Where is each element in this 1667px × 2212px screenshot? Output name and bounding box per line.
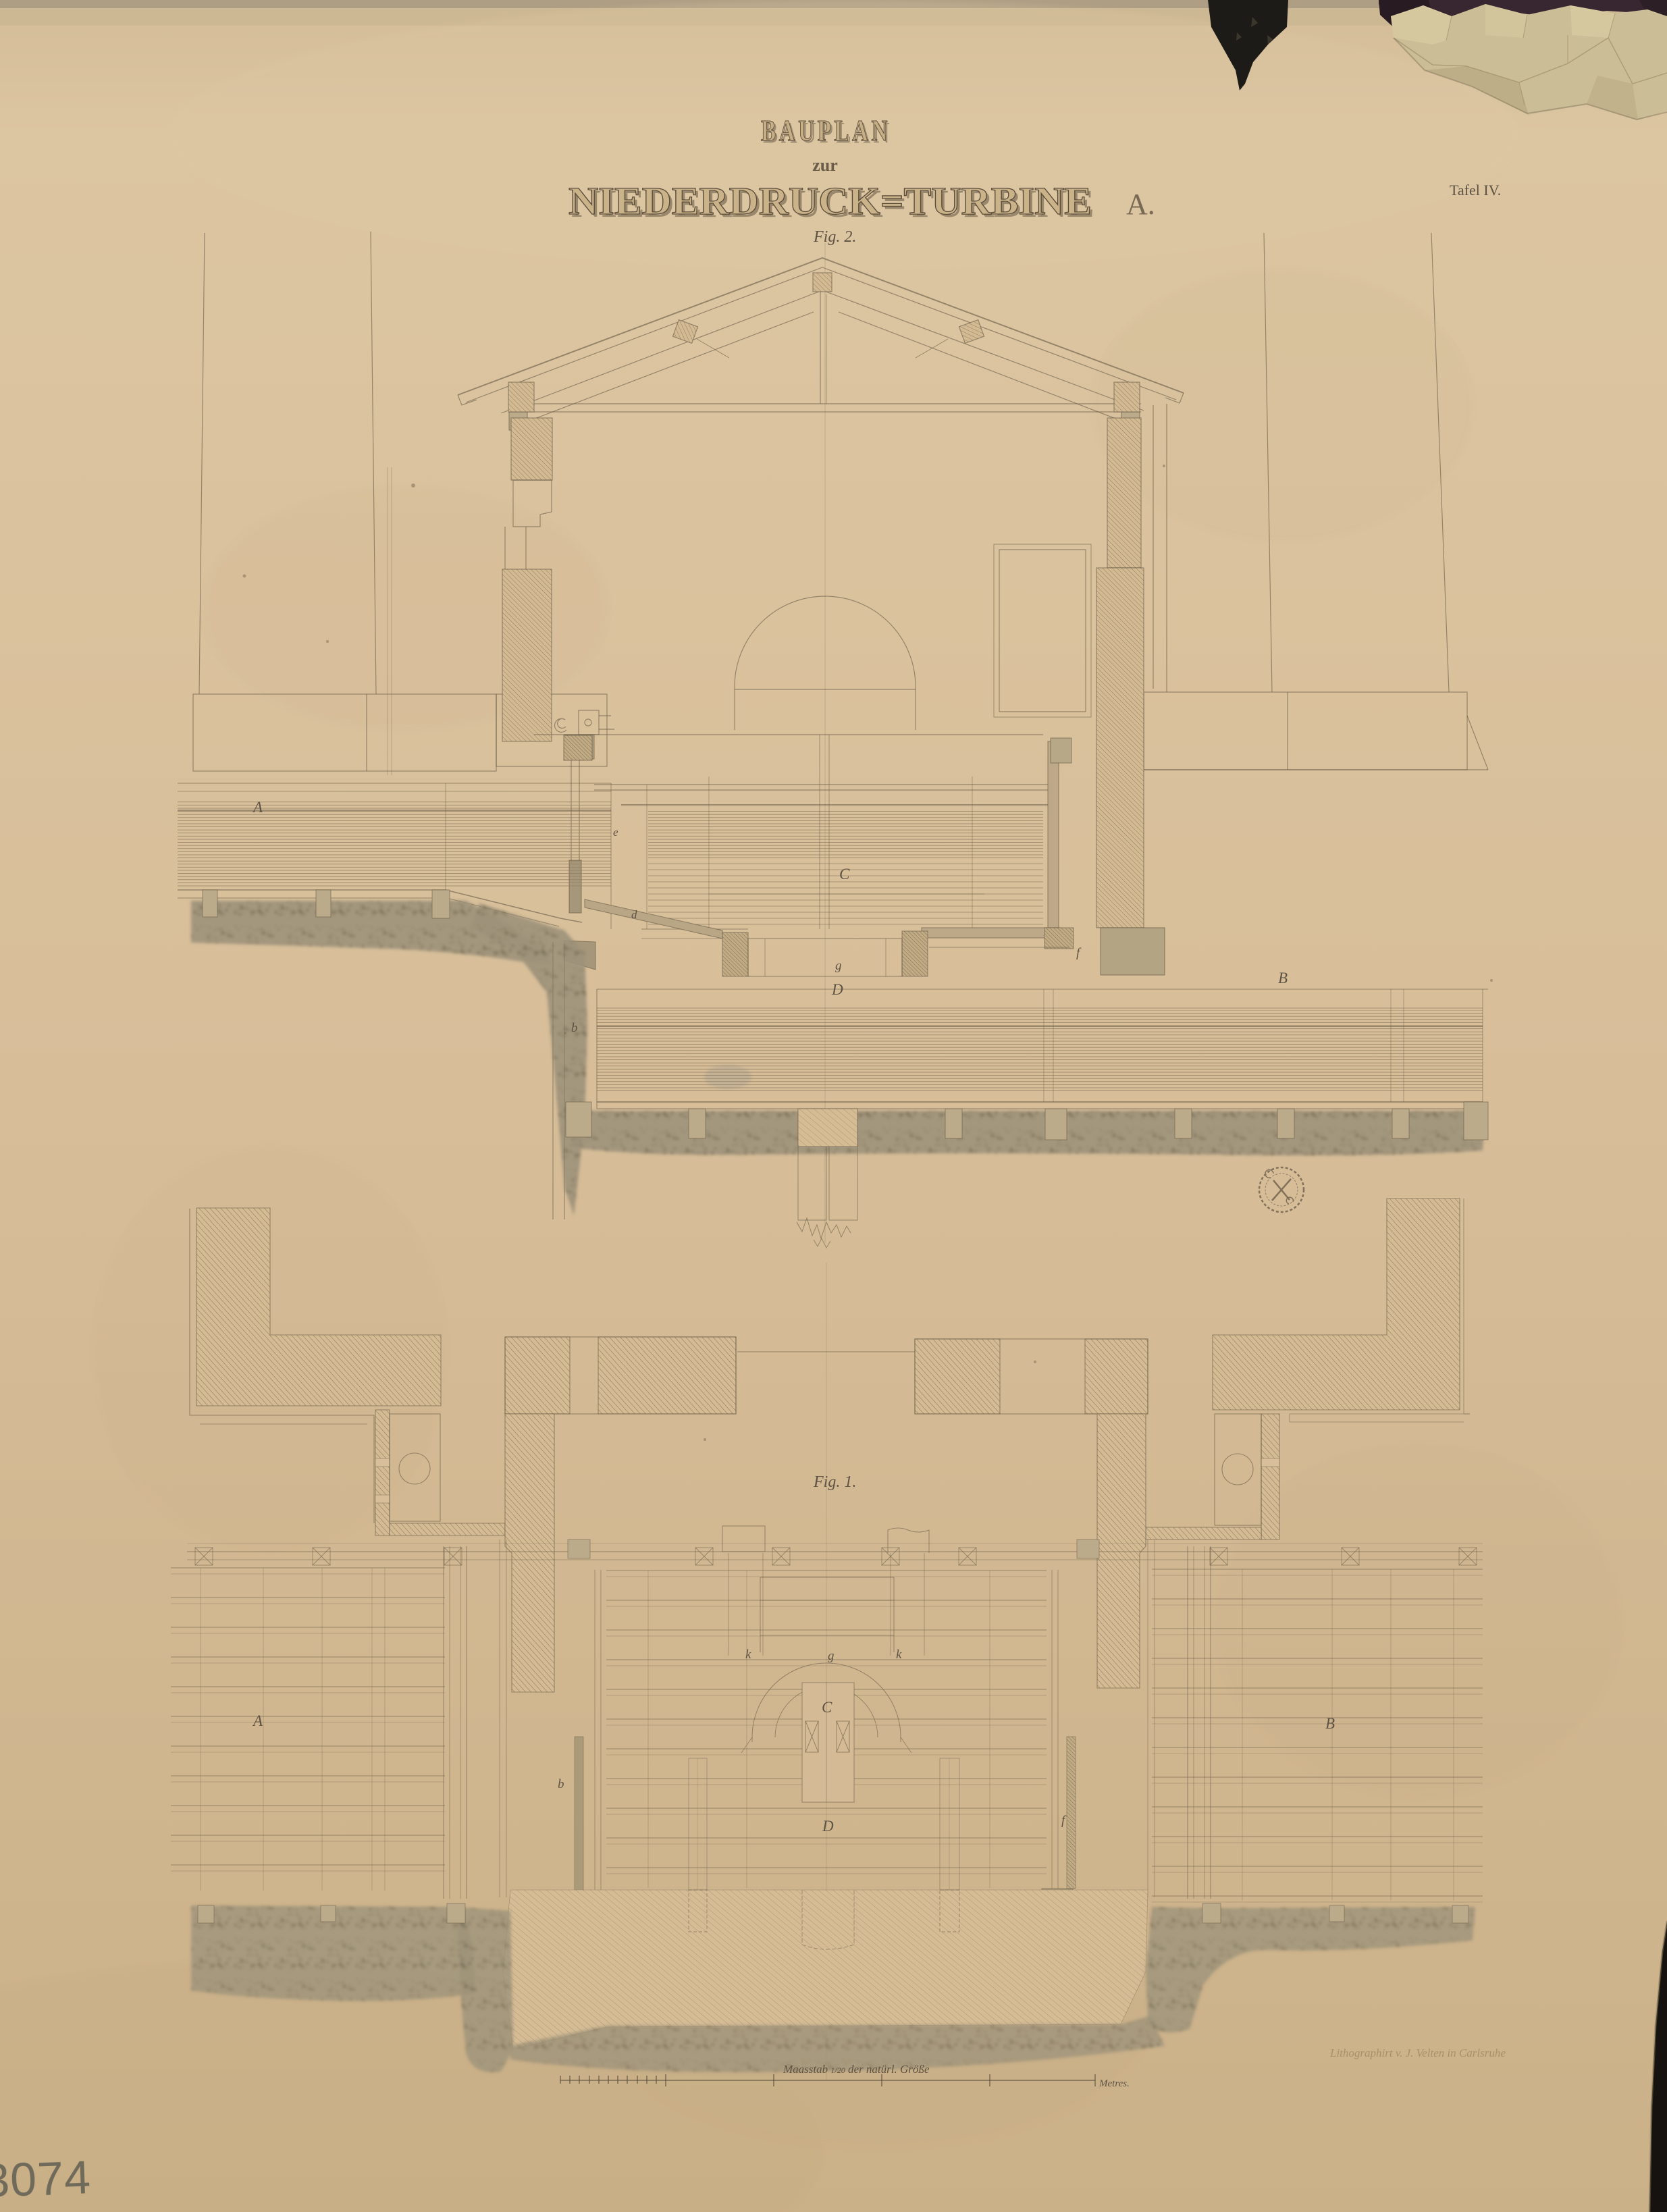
- svg-text:Fig. 2.: Fig. 2.: [813, 228, 856, 246]
- svg-text:Lithographirt v. J. Velten in: Lithographirt v. J. Velten in Carlsruhe: [1329, 2047, 1506, 2059]
- svg-text:Fig. 1.: Fig. 1.: [813, 1473, 856, 1491]
- svg-text:C: C: [822, 1699, 832, 1716]
- svg-text:A.: A.: [1126, 188, 1155, 221]
- svg-text:B: B: [1278, 970, 1288, 986]
- svg-text:k: k: [896, 1648, 902, 1662]
- svg-text:d: d: [631, 908, 637, 921]
- svg-text:Metres.: Metres.: [1099, 2078, 1130, 2089]
- svg-text:b: b: [571, 1021, 578, 1035]
- svg-text:g: g: [828, 1649, 835, 1663]
- svg-text:NIEDERDRUCK=TURBINE: NIEDERDRUCK=TURBINE: [568, 179, 1092, 223]
- svg-text:D: D: [831, 981, 843, 998]
- svg-text:Tafel IV.: Tafel IV.: [1450, 182, 1501, 199]
- svg-text:g: g: [835, 959, 842, 973]
- svg-text:Maasstab 1/20 der natürl. Größ: Maasstab 1/20 der natürl. Größe: [783, 2063, 930, 2076]
- svg-text:BAUPLAN: BAUPLAN: [761, 114, 891, 147]
- svg-text:3074: 3074: [0, 2151, 92, 2207]
- svg-text:k: k: [745, 1648, 751, 1662]
- svg-text:C: C: [839, 866, 850, 883]
- svg-text:B: B: [1325, 1715, 1335, 1732]
- svg-text:A: A: [252, 799, 263, 816]
- svg-text:D: D: [822, 1818, 834, 1835]
- svg-text:A: A: [252, 1712, 263, 1729]
- svg-text:zur: zur: [812, 155, 838, 175]
- svg-text:b: b: [558, 1777, 564, 1791]
- svg-text:e: e: [613, 826, 618, 839]
